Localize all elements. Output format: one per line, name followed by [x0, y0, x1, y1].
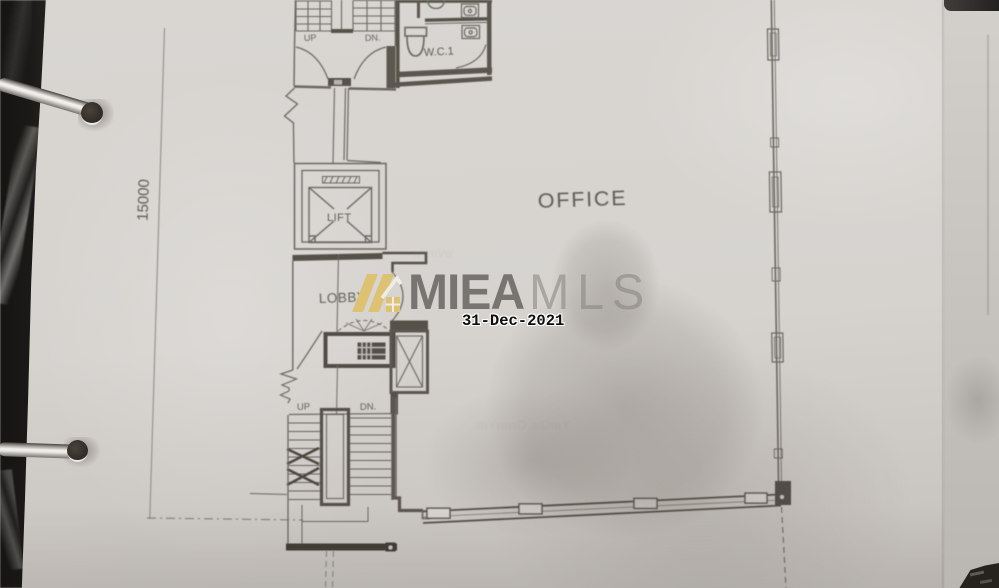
svg-text:mYmwD wDmY: mYmwD wDmY: [477, 418, 571, 432]
svg-text:wYmVw: wYmVw: [412, 248, 453, 260]
svg-text:UP: UP: [297, 402, 311, 413]
svg-text:OFFICE: OFFICE: [537, 186, 627, 213]
svg-text:W.C.1: W.C.1: [424, 45, 455, 59]
svg-text:LIFT: LIFT: [327, 212, 352, 224]
svg-text:15000: 15000: [135, 179, 153, 221]
svg-text:DN.: DN.: [365, 32, 381, 43]
svg-text:DN.: DN.: [360, 401, 377, 413]
svg-text:UP: UP: [304, 33, 317, 43]
